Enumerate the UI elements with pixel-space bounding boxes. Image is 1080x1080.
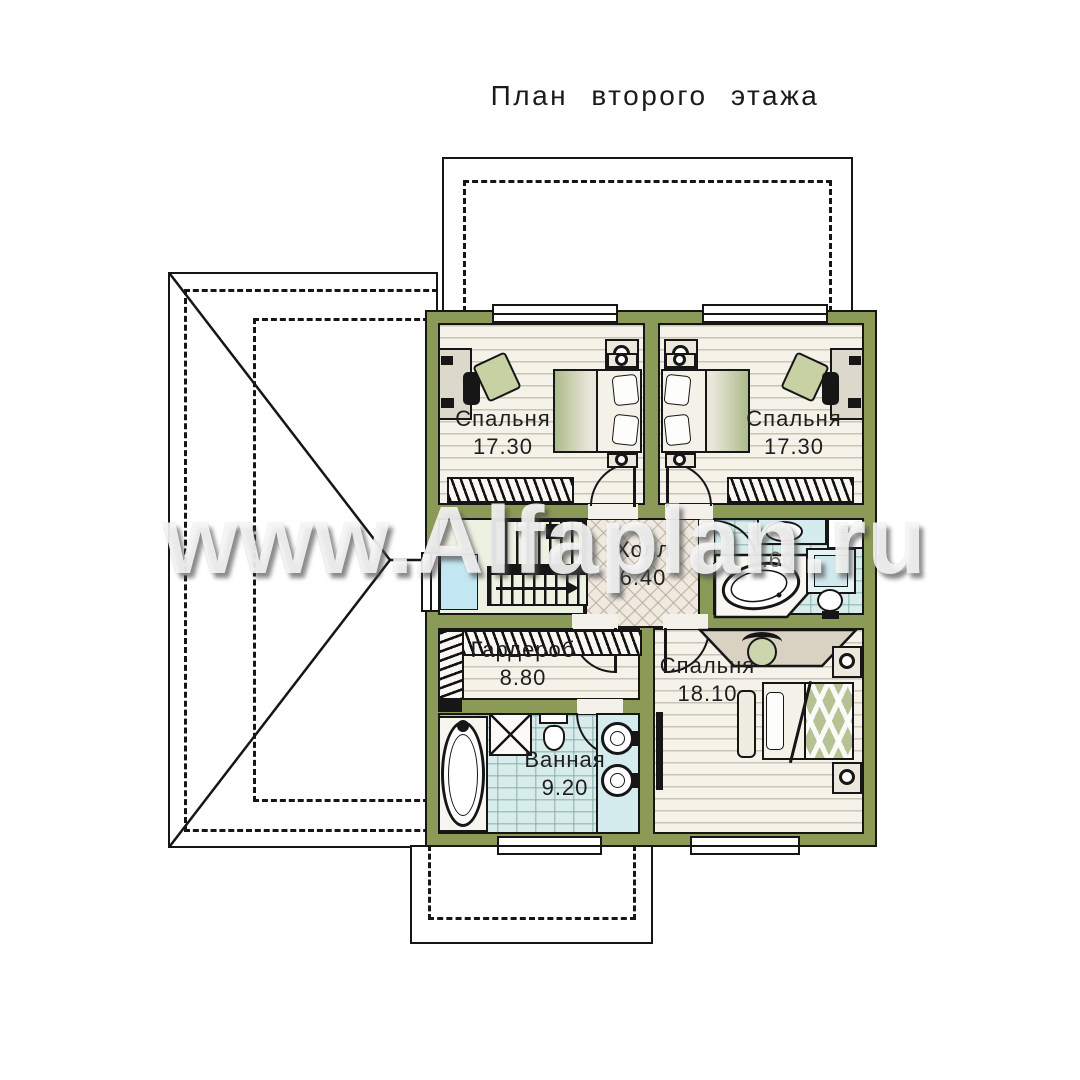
room-name: Холл (598, 536, 688, 564)
room-area: 17.30 (438, 433, 568, 461)
toilet-base-bathroom-top (822, 611, 839, 619)
garage-roof-hip-lines (168, 272, 438, 848)
room-name: Спальня (726, 405, 862, 433)
label-wardrobe: Гардероб 8.80 (448, 636, 598, 692)
faucet2-bathroom-main (631, 773, 639, 788)
sink-bathroom-top (765, 521, 803, 542)
faucet1-bathroom-main (631, 731, 639, 746)
desk-chair-bedroom2 (822, 372, 839, 405)
room-name: Спальня (438, 405, 568, 433)
chair-back-bedroom3 (742, 632, 782, 652)
room-area: 17.30 (726, 433, 862, 461)
window-stairs (421, 552, 440, 612)
room-name: Ванная (500, 746, 630, 774)
window-bedroom2 (702, 304, 828, 323)
room-area: 6.40 (598, 564, 688, 592)
pillow2-bedroom2 (664, 414, 692, 446)
door-opening-wardrobe (572, 614, 618, 629)
lamp-bottom-bedroom1 (615, 453, 628, 466)
door-opening-bedroom1 (588, 504, 638, 519)
door-opening-bathroom-main (577, 699, 623, 714)
window-sill-stairs (440, 554, 478, 610)
page-title: План второго этажа (420, 80, 890, 120)
label-bedroom2: Спальня 17.30 (726, 405, 862, 461)
bathtub-inner (448, 734, 478, 816)
shelf-unit-wardrobe (438, 699, 462, 712)
blanket-bedroom3 (804, 682, 854, 760)
stairs-direction-arrow (566, 581, 579, 595)
desk-item-bedroom2 (849, 356, 861, 365)
sink1-inner (610, 731, 625, 746)
label-bedroom1: Спальня 17.30 (438, 405, 568, 461)
tv-bedroom3 (656, 712, 663, 790)
room-area: 9.20 (500, 774, 630, 802)
wardrobe-unit-bedroom1 (447, 477, 574, 503)
bathtub-faucet (457, 720, 469, 732)
stairs-direction-line (496, 587, 568, 590)
toilet-bathroom-top (817, 589, 843, 612)
label-bathroom-top: 6.60 (737, 546, 807, 574)
window-bedroom1 (492, 304, 618, 323)
lamp-top-bedroom3 (839, 653, 855, 669)
pillow1-bedroom1 (612, 374, 640, 406)
floor-plan-canvas: План второго этажа (0, 0, 1080, 1080)
bottom-roof-overhang-dashed (428, 845, 636, 920)
lamp-bottom-bedroom2 (673, 453, 686, 466)
room-area: 18.10 (645, 680, 770, 708)
lamp-top-bedroom1 (615, 353, 628, 366)
wardrobe-unit-bedroom2 (727, 477, 854, 503)
room-name: Спальня (645, 652, 770, 680)
door-opening-bedroom3 (663, 614, 708, 629)
door-opening-bedroom2 (665, 504, 713, 519)
lamp-top-bedroom2 (673, 353, 686, 366)
room-name: Гардероб (448, 636, 598, 664)
washing-machine-label: стм (840, 525, 851, 541)
pillow2-bedroom1 (612, 414, 640, 446)
top-roof-overhang-dashed (463, 180, 832, 312)
window-bedroom3 (690, 836, 800, 855)
room-area: 6.60 (737, 546, 807, 574)
label-hall: Холл 6.40 (598, 536, 688, 592)
door-opening-bathroom-top (699, 520, 714, 566)
window-bathroom-main (497, 836, 602, 855)
label-bedroom3: Спальня 18.10 (645, 652, 770, 708)
label-bathroom-main: Ванная 9.20 (500, 746, 630, 802)
lamp-bottom-bedroom3 (839, 769, 855, 785)
shower-cabin-inner (814, 555, 848, 587)
stairs-upper-flight (492, 520, 585, 566)
room-area: 8.80 (448, 664, 598, 692)
stairs-rail (487, 566, 588, 573)
stairs-newel-post (546, 524, 563, 539)
washing-machine: стм (827, 518, 864, 549)
pillow1-bedroom2 (664, 374, 692, 406)
desk-item-bedroom1 (441, 356, 453, 365)
toilet-tank-bathroom-main (539, 713, 568, 724)
